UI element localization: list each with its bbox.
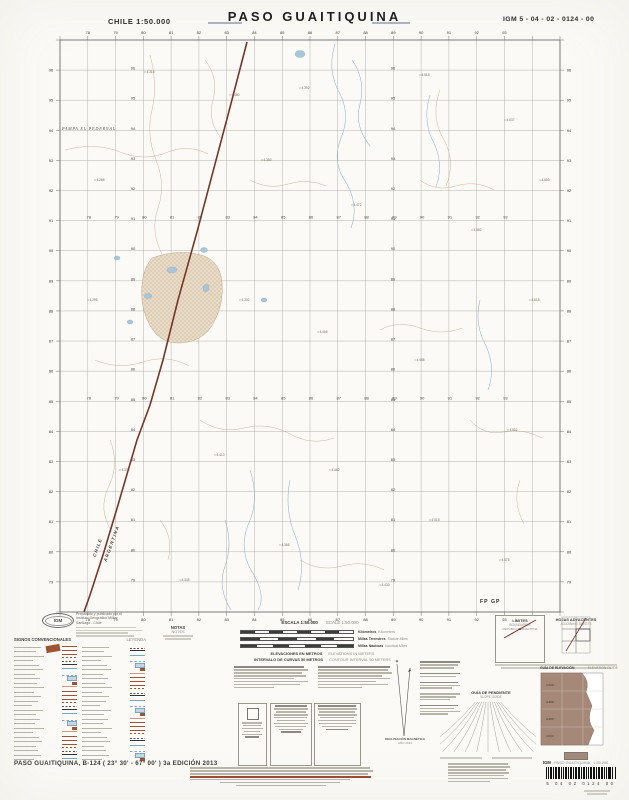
text-line: [318, 681, 376, 683]
barcode-bar: [576, 767, 577, 779]
svg-text:82: 82: [567, 489, 572, 494]
svg-text:84: 84: [253, 395, 258, 400]
svg-text:87: 87: [567, 339, 572, 344]
scale-bar-label-en: Statute Miles: [388, 637, 408, 641]
svg-text:4.000: 4.000: [546, 734, 554, 738]
legend-label: [82, 692, 102, 693]
slope-guide-diagram: [440, 698, 536, 756]
svg-text:4.515: 4.515: [422, 73, 430, 77]
text-line: [448, 766, 510, 768]
svg-text:85: 85: [281, 215, 286, 220]
scale-bar: [240, 630, 354, 634]
lake-symbol: [135, 663, 145, 668]
svg-text:87: 87: [391, 337, 396, 342]
barcode: [546, 767, 616, 779]
legend-label: [14, 683, 37, 684]
text-line: [220, 782, 340, 784]
legend-label: [14, 651, 36, 652]
svg-text:4.350: 4.350: [264, 158, 272, 162]
legend-label: [14, 647, 41, 648]
slope-guide-footnotes: [440, 756, 536, 760]
text-line: [245, 736, 259, 738]
svg-text:81: 81: [169, 617, 174, 622]
barcode-bar: [579, 767, 580, 779]
svg-text:PAMPA EL PEDERNAL: PAMPA EL PEDERNAL: [61, 126, 116, 131]
svg-text:96: 96: [567, 68, 572, 73]
text-line: [318, 669, 388, 671]
svg-text:81: 81: [131, 517, 136, 522]
svg-text:83: 83: [391, 457, 396, 462]
svg-text:83: 83: [224, 30, 229, 35]
svg-text:81: 81: [567, 519, 572, 524]
elev-es: ELEVACIONES EN METROS: [271, 651, 323, 656]
stream-symbol: [130, 700, 145, 705]
igm-product-line: IGM - PASO GUAITIQUINA - 1:50.000: [543, 760, 608, 765]
text-line: [318, 705, 356, 707]
svg-text:82: 82: [198, 395, 203, 400]
elevation-heading: ELEVACIONES EN METROS ELEVATIONS IN METE…: [240, 651, 405, 656]
svg-text:90: 90: [131, 246, 136, 251]
text-line: [492, 757, 532, 759]
declination-caption: DECLINACIÓN MAGNÉTICA AÑO 2013: [380, 737, 430, 745]
legend-label: [82, 728, 112, 729]
lake-symbol: [67, 721, 77, 726]
svg-text:88: 88: [49, 308, 54, 313]
scale-bar-km: KilómetrosKilometers: [240, 629, 412, 635]
edition-line: PASO GUAITIQUINA, B-124 ( 23° 30' - 67° …: [14, 760, 218, 767]
salar: [142, 252, 223, 343]
text-line: [448, 778, 508, 780]
text-line: [448, 775, 504, 777]
path-dashed-symbol: [130, 648, 145, 649]
text-line: [420, 664, 458, 666]
legend-label: [14, 701, 38, 702]
barcode-bar: [591, 767, 592, 779]
stream-symbol: [130, 655, 145, 660]
svg-text:87: 87: [336, 30, 341, 35]
legend-label: [82, 647, 109, 648]
svg-text:4.316: 4.316: [147, 70, 155, 74]
footer-paragraph: [190, 766, 375, 788]
text-line: [318, 687, 362, 689]
text-line: [165, 638, 191, 640]
legend-label: [14, 755, 41, 756]
text-line: [242, 734, 262, 736]
sheet-corner-diagram: [247, 708, 259, 720]
track-dashed-symbol: [62, 747, 77, 748]
svg-text:80: 80: [567, 549, 572, 554]
svg-text:95: 95: [567, 98, 572, 103]
text-line: [76, 627, 136, 629]
barcode-bar: [551, 767, 552, 779]
fineprint-column: [234, 665, 310, 690]
svg-text:91: 91: [131, 216, 136, 221]
text-line: [448, 781, 490, 783]
svg-text:85: 85: [281, 395, 286, 400]
legend-label: [82, 710, 111, 711]
scale-bar-nautical: Millas NáuticasNautical Miles: [240, 643, 412, 649]
svg-text:84: 84: [252, 30, 257, 35]
svg-text:90: 90: [391, 246, 396, 251]
barcode-bar: [571, 767, 572, 779]
building-symbol: [140, 668, 145, 671]
svg-text:FP GP: FP GP: [480, 599, 500, 605]
svg-text:4.600: 4.600: [546, 683, 554, 687]
building-symbol: [72, 727, 77, 730]
legend-label: [14, 719, 40, 720]
stream-symbol: [130, 745, 145, 750]
barcode-bar: [588, 767, 589, 779]
legend-label: [14, 741, 42, 742]
text-line: [234, 672, 302, 674]
text-line: [318, 684, 388, 686]
text-line: [276, 711, 306, 713]
text-line: [420, 661, 460, 663]
svg-text:ARGENTINA: ARGENTINA: [102, 525, 120, 563]
barcode-bar: [601, 767, 602, 779]
barcode-bar: [604, 767, 605, 779]
legend-label: [82, 660, 101, 661]
text-line: [318, 678, 390, 680]
legend-label: [14, 674, 35, 675]
notes-fineprint: [160, 635, 196, 639]
svg-text:93: 93: [49, 158, 54, 163]
scale-bar: [240, 637, 354, 641]
svg-text:87: 87: [337, 215, 342, 220]
path-dashed-symbol: [130, 693, 145, 694]
text-line: [234, 687, 274, 689]
legend-label: [82, 705, 100, 706]
barcode-bar: [586, 767, 587, 779]
barcode-digits: 5 04 02 0124 00: [546, 781, 616, 786]
legend-label: [82, 656, 112, 657]
road-double-symbol: [130, 681, 145, 686]
legend-label: [82, 746, 104, 747]
svg-text:90: 90: [49, 248, 54, 253]
text-line: [243, 725, 261, 727]
elevation-color-chip: [564, 752, 588, 760]
legend-title-right: LEYENDA: [126, 637, 146, 642]
legend-label: [82, 714, 104, 715]
track-dashed-symbol: [130, 688, 145, 689]
stream-symbol: [62, 668, 77, 673]
svg-text:84: 84: [567, 429, 572, 434]
svg-text:96: 96: [391, 66, 396, 71]
text-line: [76, 630, 142, 632]
svg-text:83: 83: [225, 215, 230, 220]
text-line: [163, 635, 193, 637]
legend-label: [82, 651, 104, 652]
interval-en: CONTOUR INTERVAL 50 METERS: [329, 657, 391, 662]
svg-text:89: 89: [131, 276, 136, 281]
svg-text:81: 81: [169, 30, 174, 35]
text-line: [274, 723, 308, 725]
svg-text:81: 81: [170, 395, 175, 400]
text-line: [275, 726, 306, 728]
svg-text:4.618: 4.618: [532, 298, 540, 302]
road-double-symbol: [62, 650, 77, 655]
legend-label: [14, 728, 44, 729]
text-line: [234, 666, 304, 668]
svg-text:79: 79: [391, 577, 396, 582]
track-dashed-symbol: [62, 657, 77, 658]
svg-text:86: 86: [309, 395, 314, 400]
svg-text:90: 90: [419, 617, 424, 622]
legend-column-right: [82, 645, 145, 762]
legend-label: [82, 683, 105, 684]
scale-heading: ESCALA 1:50.000 SCALE 1:50.000: [245, 620, 395, 625]
scale-bar-label-es: Kilómetros: [358, 630, 376, 634]
utm-grid: [56, 36, 564, 616]
barcode-bar: [555, 767, 556, 779]
svg-text:4.560: 4.560: [474, 228, 482, 232]
legend-label: [14, 723, 35, 724]
escala-label: ESCALA 1:50.000: [281, 620, 317, 625]
svg-text:86: 86: [309, 215, 314, 220]
barcode-bar: [566, 767, 567, 779]
legend-label: [82, 750, 106, 751]
text-line: [234, 681, 308, 683]
text-line: [318, 714, 357, 716]
svg-text:CHILE: CHILE: [92, 537, 103, 557]
svg-text:80: 80: [142, 215, 147, 220]
text-line: [448, 763, 508, 765]
svg-text:81: 81: [391, 517, 396, 522]
road-double-symbol: [62, 740, 77, 745]
legend-label: [14, 687, 44, 688]
svg-text:88: 88: [567, 308, 572, 313]
text-line: [277, 720, 305, 722]
contour-interval-heading: INTERVALO DE CURVAS 50 METROS CONTOUR IN…: [240, 657, 405, 662]
svg-text:80: 80: [49, 549, 54, 554]
text-line: [448, 772, 509, 774]
legend-label: [14, 696, 41, 697]
svg-text:96: 96: [131, 66, 136, 71]
svg-text:79: 79: [114, 215, 119, 220]
svg-text:82: 82: [49, 489, 54, 494]
building-symbol: [72, 682, 77, 685]
note-box: [270, 703, 312, 766]
text-line: [281, 731, 301, 733]
barcode-bar: [546, 767, 547, 779]
producer-line: Santiago - Chile: [76, 621, 148, 625]
elevation-guide-diagram: 4.6004.4004.2004.000: [540, 672, 606, 748]
text-line: [279, 729, 303, 731]
svg-text:4.385: 4.385: [282, 543, 290, 547]
svg-text:89: 89: [391, 30, 396, 35]
text-line: [420, 682, 458, 684]
legend-label: [82, 696, 109, 697]
boundaries-box: LÍMITES BOUNDARIES REPÚBLICA ARGENTINA: [495, 615, 545, 663]
svg-text:80: 80: [141, 30, 146, 35]
svg-text:4.480: 4.480: [232, 93, 240, 97]
svg-text:93: 93: [502, 30, 507, 35]
svg-text:90: 90: [567, 248, 572, 253]
svg-text:4.400: 4.400: [546, 700, 554, 704]
svg-text:82: 82: [131, 487, 136, 492]
igm-logo: IGM: [42, 613, 74, 628]
svg-text:4.392: 4.392: [302, 86, 310, 90]
legend-label: [82, 687, 112, 688]
fineprint-column: [318, 665, 394, 690]
svg-text:85: 85: [567, 399, 572, 404]
text-line: [190, 770, 373, 772]
elevguide-title: GUÍA DE ELEVACIÓN: [540, 666, 574, 670]
svg-text:91: 91: [448, 215, 453, 220]
svg-text:4.268: 4.268: [97, 178, 105, 182]
note-box-diagram: [238, 703, 267, 766]
note-box: [314, 703, 361, 766]
svg-text:78: 78: [87, 215, 92, 220]
text-line: [244, 731, 260, 733]
igm-rest: - PASO GUAITIQUINA - 1:50.000: [551, 761, 608, 765]
svg-text:90: 90: [420, 395, 425, 400]
path-dashed-symbol: [130, 738, 145, 739]
svg-text:91: 91: [447, 617, 452, 622]
legend-label: [82, 678, 108, 679]
text-line: [587, 793, 607, 795]
barcode-bar: [581, 767, 582, 779]
text-line: [420, 676, 456, 678]
barcode-bar: [606, 767, 607, 779]
svg-text:79: 79: [114, 395, 119, 400]
footer-paragraph-right: [448, 762, 510, 784]
legend-heading: SIGNOS CONVENCIONALES LEYENDA: [14, 637, 146, 642]
scale-bar: [240, 644, 354, 648]
svg-text:92: 92: [391, 186, 396, 191]
svg-text:82: 82: [197, 617, 202, 622]
svg-text:96: 96: [49, 68, 54, 73]
svg-text:81: 81: [49, 519, 54, 524]
svg-text:92: 92: [567, 188, 572, 193]
svg-text:93: 93: [567, 158, 572, 163]
boundary-sample-diagram: [496, 616, 544, 642]
text-line: [274, 717, 307, 719]
map-sheet: CHILE 1:50.000 PASO GUAITIQUINA IGM 5 - …: [0, 0, 629, 800]
svg-text:87: 87: [131, 337, 136, 342]
svg-text:88: 88: [364, 215, 369, 220]
legend-label: [14, 732, 33, 733]
text-line: [320, 717, 354, 719]
svg-text:4.330: 4.330: [242, 298, 250, 302]
legend-label: [14, 750, 38, 751]
stream-symbol: [62, 713, 77, 718]
legend-label: [14, 669, 43, 670]
legend-label: [82, 674, 103, 675]
igm-bold: IGM: [543, 760, 551, 765]
svg-text:88: 88: [131, 306, 136, 311]
svg-text:86: 86: [391, 367, 396, 372]
legend-label: [82, 723, 103, 724]
svg-text:4.575: 4.575: [502, 558, 510, 562]
svg-text:92: 92: [49, 188, 54, 193]
elevation-guide-heading: GUÍA DE ELEVACIÓN ELEVATION GUIDE: [540, 666, 618, 670]
svg-text:78: 78: [87, 395, 92, 400]
svg-text:85: 85: [280, 30, 285, 35]
svg-text:79: 79: [49, 579, 54, 584]
svg-text:4.370: 4.370: [122, 468, 130, 472]
svg-text:80: 80: [142, 395, 147, 400]
legend-label: [82, 719, 108, 720]
svg-text:4.472: 4.472: [354, 203, 362, 207]
svg-text:83: 83: [49, 459, 54, 464]
svg-text:82: 82: [391, 487, 396, 492]
legend-label: [82, 669, 111, 670]
svg-text:92: 92: [474, 30, 479, 35]
svg-text:79: 79: [113, 30, 118, 35]
notes-label: NOTES: [160, 630, 196, 634]
producer-fineprint: [76, 627, 148, 637]
svg-text:86: 86: [567, 369, 572, 374]
svg-text:79: 79: [131, 577, 136, 582]
road-double-symbol: [130, 726, 145, 731]
text-line: [234, 684, 300, 686]
text-line: [584, 790, 610, 792]
svg-text:89: 89: [49, 278, 54, 283]
svg-text:92: 92: [474, 617, 479, 622]
svg-text:89: 89: [567, 278, 572, 283]
text-line: [234, 669, 308, 671]
legend-label: [14, 678, 40, 679]
svg-text:92: 92: [475, 395, 480, 400]
svg-text:92: 92: [131, 186, 136, 191]
text-line: [319, 723, 356, 725]
svg-text:88: 88: [363, 30, 368, 35]
svg-text:86: 86: [131, 367, 136, 372]
text-line: [275, 705, 307, 707]
svg-text:80: 80: [391, 547, 396, 552]
svg-text:4.552: 4.552: [510, 428, 518, 432]
elev-en: ELEVATIONS IN METERS: [328, 651, 374, 656]
legend-label: [14, 737, 39, 738]
scale-bar-label-es: Millas Terrestres: [358, 637, 386, 641]
adjoining-sheets: HOJAS ADYACENTES ADJOINING SHEETS: [554, 615, 598, 626]
text-line: [242, 728, 263, 730]
text-line: [236, 785, 326, 787]
svg-text:90: 90: [420, 215, 425, 220]
svg-text:90: 90: [419, 30, 424, 35]
barcode-bar: [563, 767, 564, 779]
svg-text:93: 93: [391, 156, 396, 161]
text-line: [319, 711, 355, 713]
svg-text:4.462: 4.462: [332, 468, 340, 472]
svg-text:83: 83: [567, 459, 572, 464]
legend-label: [82, 701, 106, 702]
legend-label: [14, 710, 43, 711]
legend-label: [14, 714, 36, 715]
legend-label: [14, 705, 32, 706]
text-line: [190, 779, 350, 781]
legend-label: [14, 656, 44, 657]
svg-text:94: 94: [131, 126, 136, 131]
scale-bar-miles: Millas TerrestresStatute Miles: [240, 636, 412, 642]
svg-text:4.295: 4.295: [90, 298, 98, 302]
legend-title: SIGNOS CONVENCIONALES: [14, 637, 71, 642]
svg-text:84: 84: [49, 429, 54, 434]
text-line: [234, 675, 306, 677]
barcode-fineprint: [584, 789, 612, 796]
svg-text:95: 95: [391, 96, 396, 101]
lake-symbol: [135, 708, 145, 713]
svg-text:86: 86: [49, 369, 54, 374]
svg-text:92: 92: [475, 215, 480, 220]
svg-text:85: 85: [131, 397, 136, 402]
text-line: [274, 714, 308, 716]
svg-text:93: 93: [503, 215, 508, 220]
path-dashed-symbol: [62, 706, 77, 707]
svg-text:91: 91: [49, 218, 54, 223]
text-line: [274, 708, 308, 710]
